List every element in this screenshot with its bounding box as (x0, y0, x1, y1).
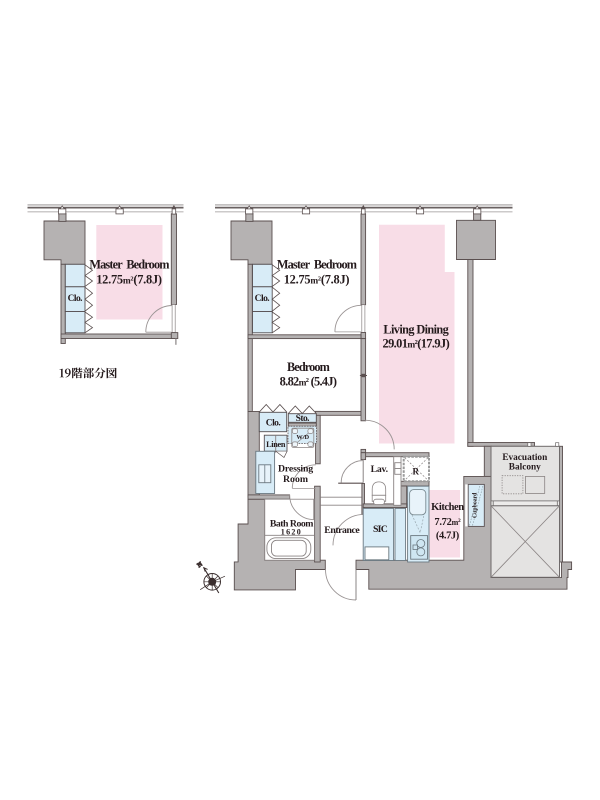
svg-text:Room: Room (283, 474, 308, 485)
svg-text:Sto.: Sto. (296, 414, 310, 424)
svg-text:Master Bedroom: Master Bedroom (89, 257, 170, 271)
svg-text:Clo.: Clo. (68, 294, 83, 304)
svg-text:W/D: W/D (296, 434, 309, 441)
svg-text:8.82m2 (5.4J): 8.82m2 (5.4J) (280, 374, 337, 388)
svg-text:Lav.: Lav. (371, 464, 389, 475)
svg-text:Clo.: Clo. (266, 419, 281, 429)
svg-text:Cupboard: Cupboard (473, 492, 479, 518)
svg-text:Clo.: Clo. (255, 294, 270, 304)
svg-text:Evacuation: Evacuation (502, 453, 548, 463)
svg-text:7.72m2: 7.72m2 (434, 517, 461, 528)
svg-text:Kitchen: Kitchen (431, 502, 464, 513)
svg-text:Living Dining: Living Dining (383, 323, 449, 337)
svg-text:Master Bedroom: Master Bedroom (277, 257, 358, 271)
svg-text:R: R (412, 467, 419, 477)
svg-text:(4.7J): (4.7J) (436, 531, 460, 542)
svg-text:Balcony: Balcony (509, 463, 541, 473)
svg-text:SIC: SIC (373, 524, 388, 535)
svg-text:Entrance: Entrance (324, 525, 360, 536)
svg-text:Bedroom: Bedroom (287, 360, 331, 374)
svg-text:1620: 1620 (281, 527, 302, 536)
svg-text:Linen: Linen (266, 440, 286, 449)
